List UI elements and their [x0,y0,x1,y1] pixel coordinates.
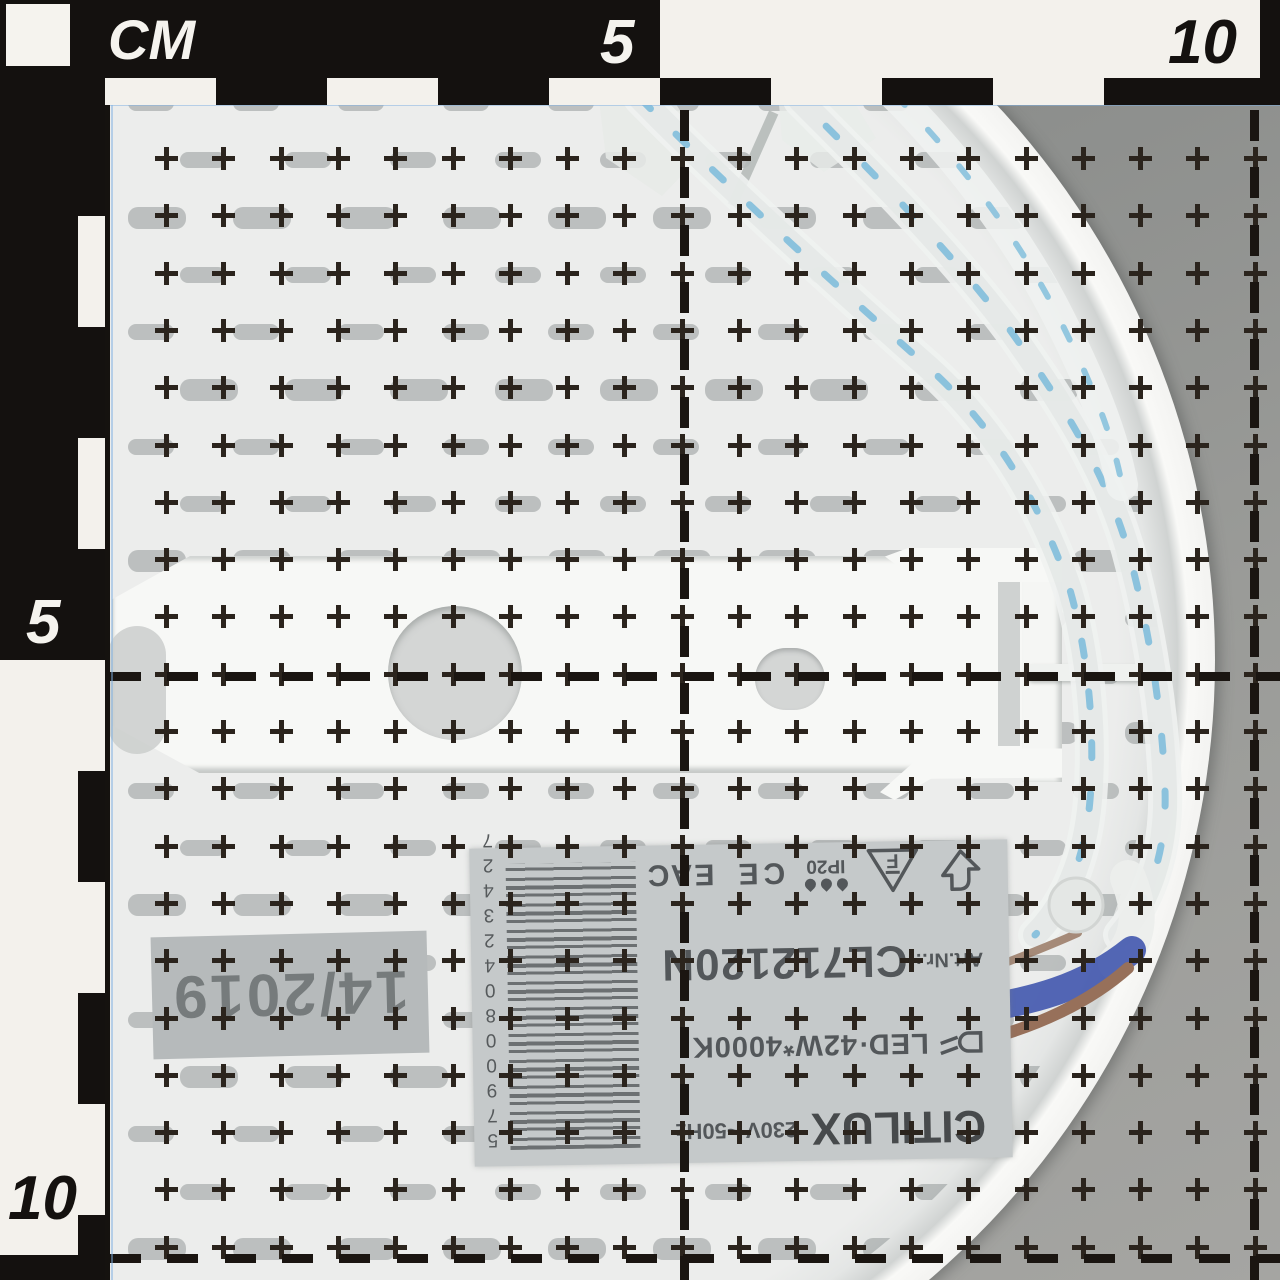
decor [1104,78,1215,105]
drip-icons [804,878,847,890]
decor [78,1104,105,1215]
ruler-top-tick-10: 10 [1168,12,1237,74]
label-model-row: Art.Nr.: CL712120N [641,933,984,989]
ruler-left-black-segment [0,78,78,660]
drip-icon [802,876,818,892]
decor [660,78,771,105]
led-bulb-icon [938,1028,984,1057]
drip-icon [834,875,850,891]
braided-cables [640,95,1165,963]
decor [78,660,105,771]
brand-logo: CITILUX [811,1100,987,1155]
decor [78,882,105,993]
model-number: CL712120N [661,935,908,989]
art-number-label: Art.Nr.: [915,947,983,971]
decor [78,1215,105,1280]
decor [78,327,105,438]
frequency-value: ~50Hz [675,1118,740,1144]
date-stamp-text: 14/2019 [170,958,410,1033]
decor [78,549,105,660]
label-certification-row: F IP20 CE ЕАС [639,846,982,898]
decor [1215,78,1280,105]
barcode-bars [506,862,641,1150]
decor [549,78,660,105]
decor [78,993,105,1104]
svg-text:F: F [886,849,899,871]
f-mark-triangle-icon: F [866,847,919,894]
decor [438,78,549,105]
decor [78,216,105,327]
ceiling-mount-arrow-icon [937,846,982,893]
drip-icon [818,876,834,892]
decor [327,78,438,105]
ip-rating-group: IP20 [804,854,848,890]
decor [216,78,327,105]
voltage-value: 230V [746,1117,798,1143]
ip-rating: IP20 [806,854,845,877]
ce-mark: CE [733,855,785,890]
decor [105,78,216,105]
disc-plug-hole [1049,878,1103,932]
label-spec-row: LED·42W*4000K [642,1025,985,1064]
ruler-left-tick-10: 10 [8,1168,77,1230]
ruler-top-corner-segment [1260,0,1280,78]
ruler-top-tick-5: 5 [600,12,634,74]
date-stamp-sticker: 14/2019 [151,931,430,1060]
decor [882,78,993,105]
decor [993,78,1104,105]
decor [771,78,882,105]
label-brand-row: CITILUX 230V ~50Hz [644,1100,987,1158]
decor [78,438,105,549]
decor [78,105,105,216]
decor [78,771,105,882]
lamp-spec: LED·42W*4000K [691,1026,929,1063]
ruler-unit-label: CM [108,12,195,68]
calibration-photo-stage: CITILUX 230V ~50Hz LED·42W*4000K Art.Nr.… [0,0,1280,1280]
product-label: CITILUX 230V ~50Hz LED·42W*4000K Art.Nr.… [469,839,1012,1166]
voltage-frequency: 230V ~50Hz [675,1117,797,1142]
ruler-left-tick-5: 5 [26,592,60,654]
barcode-block: 5790080423427 [469,846,641,1167]
label-text-column: CITILUX 230V ~50Hz LED·42W*4000K Art.Nr.… [635,839,1012,1163]
ruler-top-black-segment [0,0,660,78]
eac-mark: ЕАС [645,856,714,891]
ruler-corner-square [6,4,70,66]
